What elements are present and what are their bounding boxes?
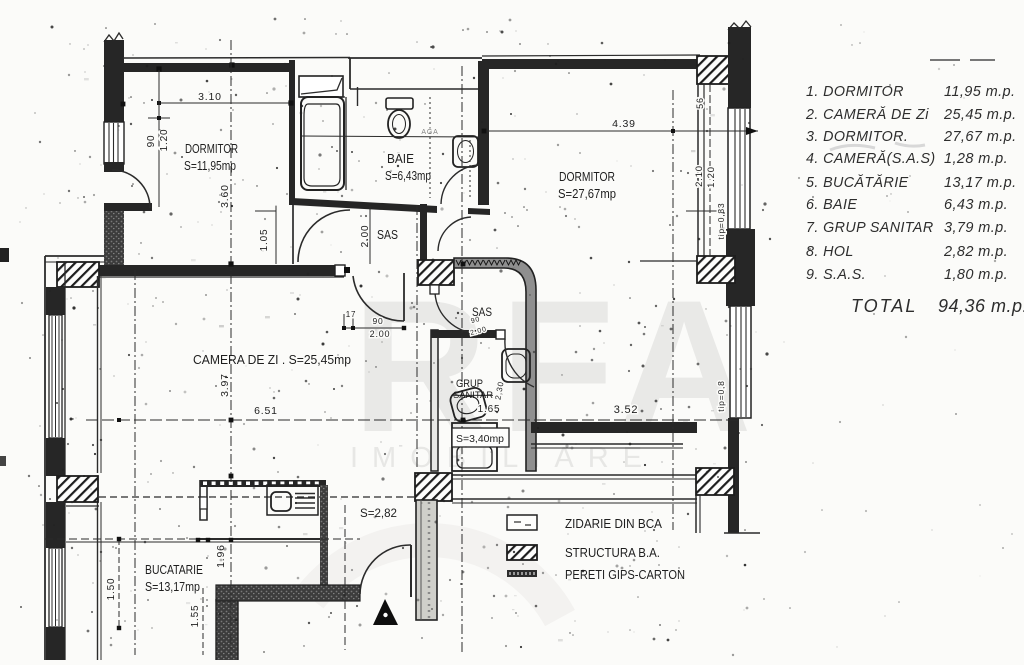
svg-text:AGA: AGA <box>421 129 438 136</box>
svg-text:56: 56 <box>695 97 705 109</box>
svg-text:1.20: 1.20 <box>706 166 717 188</box>
svg-text:DORMITOR: DORMITOR <box>185 141 238 156</box>
svg-text:S=3,40mp: S=3,40mp <box>456 433 504 445</box>
svg-text:S=13,17mp: S=13,17mp <box>145 580 200 594</box>
svg-text:S=27,67mp: S=27,67mp <box>558 187 616 201</box>
svg-text:94,36 m.p.: 94,36 m.p. <box>938 296 1024 316</box>
svg-text:2.00: 2.00 <box>360 225 371 248</box>
svg-text:4. CAMERĂ(S.A.S): 4. CAMERĂ(S.A.S) <box>806 150 936 167</box>
svg-text:SAS: SAS <box>472 307 492 319</box>
svg-text:11,95 m.p.: 11,95 m.p. <box>944 84 1015 100</box>
svg-text:1.55: 1.55 <box>190 605 201 628</box>
svg-text:RFA: RFA <box>352 261 764 471</box>
svg-text:2.00: 2.00 <box>370 329 391 339</box>
svg-text:SANITAR: SANITAR <box>453 390 493 401</box>
svg-text:1.20: 1.20 <box>159 129 170 152</box>
svg-text:3.10: 3.10 <box>198 91 222 103</box>
svg-text:6.51: 6.51 <box>254 405 278 417</box>
svg-text:3. DORMITOR.: 3. DORMITOR. <box>806 129 908 145</box>
svg-text:9. S.A.S.: 9. S.A.S. <box>806 267 866 283</box>
svg-text:8. HOL: 8. HOL <box>806 244 854 260</box>
svg-text:STRUCTURA B.A.: STRUCTURA B.A. <box>565 546 660 560</box>
svg-text:ZIDARIE DIN BCA: ZIDARIE DIN BCA <box>565 517 663 531</box>
svg-text:CAMERA DE ZI . S=25,45mp: CAMERA DE ZI . S=25,45mp <box>193 352 351 367</box>
svg-text:3,79 m.p.: 3,79 m.p. <box>944 220 1008 236</box>
svg-text:2,82 m.p.: 2,82 m.p. <box>943 244 1008 260</box>
svg-text:6. BAIE: 6. BAIE <box>806 197 857 213</box>
svg-text:GRUP: GRUP <box>456 378 483 390</box>
svg-text:TOTAL: TOTAL <box>851 296 917 316</box>
svg-text:1.50: 1.50 <box>106 578 117 601</box>
svg-text:4.39: 4.39 <box>612 118 636 130</box>
svg-text:DORMITOR: DORMITOR <box>559 169 615 184</box>
svg-text:BUCATARIE: BUCATARIE <box>145 562 203 577</box>
svg-text:tip=0,8: tip=0,8 <box>716 380 726 411</box>
svg-text:27,67 m.p.: 27,67 m.p. <box>943 129 1017 145</box>
svg-text:1.65: 1.65 <box>478 404 501 415</box>
svg-text:25,45 m.p.: 25,45 m.p. <box>943 107 1017 123</box>
svg-text:SAS: SAS <box>377 228 398 242</box>
svg-text:90: 90 <box>146 135 157 148</box>
svg-text:13,17 m.p.: 13,17 m.p. <box>944 175 1017 191</box>
svg-text:2.10: 2.10 <box>694 165 705 187</box>
svg-text:5. BUCĂTĂRIE: 5. BUCĂTĂRIE <box>806 174 909 191</box>
svg-text:1,28 m.p.: 1,28 m.p. <box>944 151 1008 167</box>
svg-text:17: 17 <box>346 310 357 319</box>
svg-text:3.52: 3.52 <box>614 404 639 416</box>
svg-text:1.05: 1.05 <box>259 229 270 252</box>
svg-text:6,43 m.p.: 6,43 m.p. <box>944 197 1008 213</box>
svg-text:1. DORMITOR: 1. DORMITOR <box>806 84 904 100</box>
svg-text:90: 90 <box>372 316 383 326</box>
svg-text:S=11,95mp: S=11,95mp <box>184 159 236 173</box>
svg-text:7. GRUP SANITAR: 7. GRUP SANITAR <box>806 220 934 236</box>
svg-text:BAIE: BAIE <box>387 151 414 166</box>
svg-text:2. CAMERĂ DE Zi: 2. CAMERĂ DE Zi <box>805 106 929 123</box>
svg-text:S=2,82: S=2,82 <box>360 506 397 520</box>
svg-text:1,80 m.p.: 1,80 m.p. <box>944 267 1008 283</box>
svg-text:3.60: 3.60 <box>219 184 231 208</box>
svg-text:tip=0,83: tip=0,83 <box>716 203 726 240</box>
